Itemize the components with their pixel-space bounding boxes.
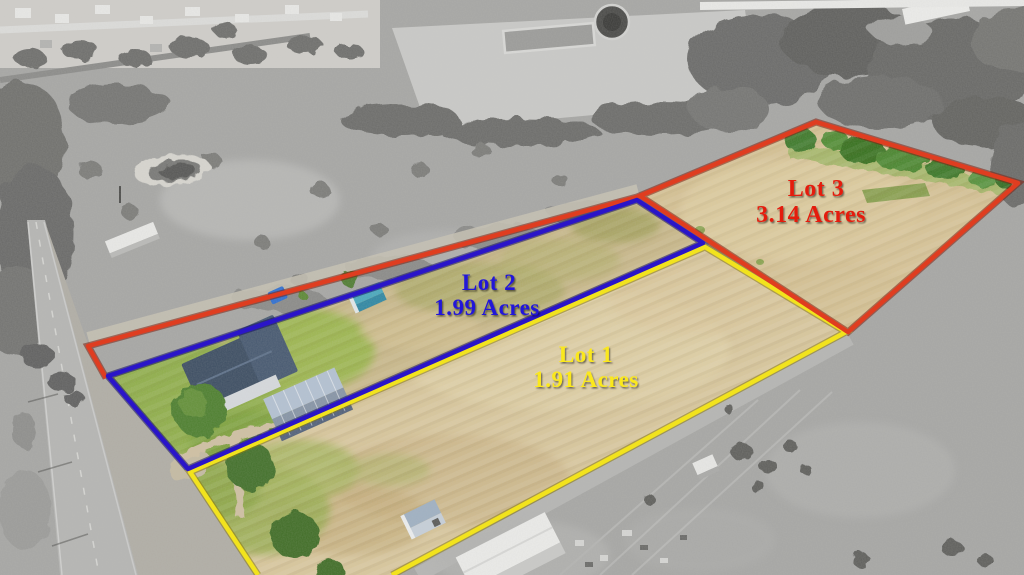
lot-2-acreage: 1.99 Acres	[434, 295, 540, 320]
lot-3-acreage: 3.14 Acres	[756, 202, 866, 228]
lot-3-name: Lot 3	[788, 176, 845, 202]
lot-1-name: Lot 1	[559, 342, 613, 367]
lot-2-name: Lot 2	[462, 270, 516, 295]
aerial-photo: Lot 3 3.14 Acres Lot 2 1.99 Acres Lot 1 …	[0, 0, 1024, 575]
scene-svg: Lot 3 3.14 Acres Lot 2 1.99 Acres Lot 1 …	[0, 0, 1024, 575]
lot-1-acreage: 1.91 Acres	[533, 367, 639, 392]
